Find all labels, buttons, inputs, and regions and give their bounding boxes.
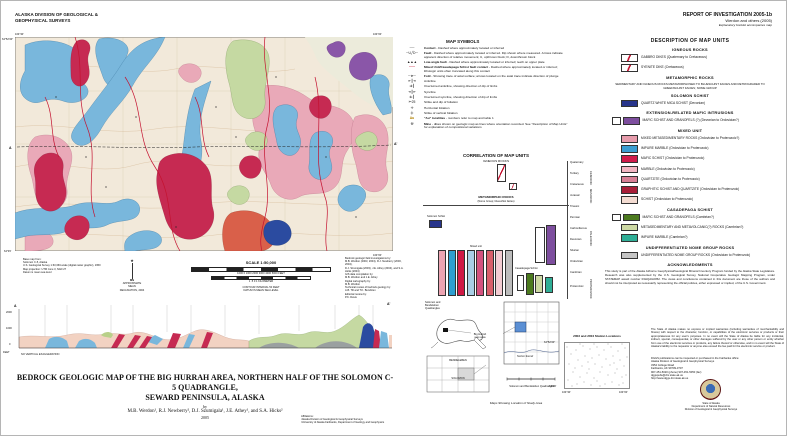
casadepaga-header: CASADEPAGA SCHIST — [595, 207, 785, 212]
fold-axis-icon: ─➤─ — [400, 75, 424, 79]
era-label: PALEOZOIC — [588, 231, 591, 246]
unit-swatch — [621, 196, 638, 204]
correlation-panel: CORRELATION OF MAP UNITS IGNEOUS ROCKS M… — [421, 153, 601, 301]
correlation-box-mafic-purple — [546, 225, 556, 265]
acknowledgments-title: ACKNOWLEDGMENTS — [595, 262, 785, 267]
time-tick: Silurian — [570, 250, 579, 253]
correlation-box-mixed-5 — [476, 250, 484, 296]
ordering-info: DGGS publications can be inspected or pu… — [651, 357, 784, 381]
north-arrow: ★ MN APPROXIMATE MEAN DECLINATION, 2004 — [119, 258, 145, 292]
correlation-box-mixed-3 — [457, 250, 465, 296]
coord-nw-lon: 164°30' — [15, 33, 24, 36]
extension-header: EXTENSION-RELATED MAFIC INTRUSIONS — [595, 110, 785, 115]
description-title: DESCRIPTION OF MAP UNITS — [595, 38, 785, 44]
inset-label-top: BENDELEBEN — [441, 359, 475, 362]
station-corner-se-lon: 164°00' — [619, 391, 628, 394]
correlation-box-mixed-4 — [467, 250, 475, 296]
norton-sound-label: Norton Sound — [517, 355, 533, 358]
correlation-box-mixed-7 — [495, 250, 503, 296]
horizontal-foliation-icon: ✛ — [400, 107, 424, 111]
section-endpoint-a-prime: A' — [394, 142, 397, 147]
xsection-elev-top: 2000 — [6, 311, 12, 314]
unit-label: QUARTZ WHITE MICA SCHIST (Devonian) — [641, 102, 705, 106]
time-tick: Jurassic — [570, 195, 580, 198]
overturned-syncline-icon: ⇇┃ — [400, 96, 424, 100]
disclaimer-text: The State of Alaska makes no express or … — [651, 328, 784, 348]
report-header: REPORT OF INVESTIGATION 2005-1b Werdon a… — [572, 12, 772, 27]
map-title-line1: BEDROCK GEOLOGIC MAP OF THE BIG HURRAH A… — [15, 373, 395, 393]
unit-label: GRAPHITIC SCHIST AND QUARTZITE (Ordovici… — [641, 188, 739, 192]
correlation-box-syenite — [509, 183, 517, 190]
scalebar-feet-labels: 1000 0 1000 2000 3000 4000 5000 FEET — [181, 272, 341, 275]
big-hurrah-cell — [515, 322, 526, 332]
fault-line-icon: ─U╱D─ — [400, 52, 424, 59]
coord-sw-lat: 64°45' — [4, 250, 11, 253]
station-corner-sw-lat: 64°45' — [549, 385, 556, 388]
correlation-divider — [423, 205, 569, 206]
time-tick: Cambrian — [570, 272, 582, 275]
unit-label: SCHIST (Ordovician to Proterozoic) — [641, 198, 693, 202]
location-maps-caption: Maps Showing Location of Study Area — [451, 401, 581, 405]
agency-signature: State of Alaska Department of Natural Re… — [663, 402, 759, 412]
solomon-header: SOLOMON SCHIST — [595, 93, 785, 98]
unit-label: SYENITE DIKE (Cretaceous) — [641, 66, 684, 70]
time-tick: Tertiary — [570, 173, 579, 176]
scale-block: SCALE 1:50,000 1000 0 1000 2000 3000 400… — [181, 260, 341, 292]
casadepaga-schist-label: Casadepaga Schist — [515, 267, 538, 270]
unit-swatch — [623, 214, 640, 222]
mixed-unit-label: Mixed unit — [437, 245, 515, 248]
base-map-credits: Base map from: Solomon C-5, Alaska U.S. … — [23, 258, 111, 274]
xsection-note: NO VERTICAL EXAGGERATION — [21, 353, 59, 356]
description-panel: DESCRIPTION OF MAP UNITS IGNEOUS ROCKS G… — [595, 38, 785, 285]
time-tick: Devonian — [570, 239, 581, 242]
coord-ne-lon: 164°00' — [373, 33, 382, 36]
correlation-box-gabbro — [497, 164, 506, 182]
correlation-box-casadepaga-2 — [535, 275, 543, 293]
unit-swatch — [621, 100, 638, 108]
era-label: PROTEROZOIC — [588, 279, 591, 299]
unit-swatch-white-variant — [612, 214, 621, 222]
map-sheet: ALASKA DIVISION OF GEOLOGICAL & GEOPHYSI… — [0, 0, 787, 436]
correlation-igneous-header: IGNEOUS ROCKS — [421, 159, 571, 163]
unit-swatch — [621, 252, 638, 260]
metamorphic-header: METAMORPHIC ROCKS — [595, 75, 785, 80]
quad-map-caption: Solomon and Bendeleben Quadrangles — [497, 385, 567, 388]
correlation-metamorphic-sub: (Nome Group; blueschist facies) — [426, 200, 566, 203]
unit-label: MAFIC SCHIST AND GRANOFELS (?) (Devonian… — [643, 119, 739, 123]
igneous-header: IGNEOUS ROCKS — [595, 47, 785, 52]
vertical-foliation-icon: ╪ — [400, 112, 424, 116]
production-credits: Bedrock geologic field investigations by… — [345, 257, 405, 299]
unit-swatch — [621, 135, 638, 143]
unit-swatch — [621, 224, 638, 232]
xsection-elev-zero: 0 — [9, 343, 10, 346]
unit-label: IMPURE MARBLE (Cambrian?) — [641, 236, 688, 240]
map-symbols-title: MAP SYMBOLS — [446, 39, 576, 45]
unit-label: QUARTZITE (Ordovician to Proterozoic) — [641, 178, 700, 182]
time-tick: Carboniferous — [570, 228, 587, 231]
cross-section-svg — [15, 301, 395, 353]
time-axis-line — [567, 161, 568, 299]
time-tick: Ordovician — [570, 261, 583, 264]
scale-label: SCALE 1:50,000 — [181, 260, 341, 265]
unit-label: MAFIC SCHIST AND GRANOFELS (Cambrian?) — [643, 216, 714, 220]
section-endpoint-a: A — [9, 146, 12, 151]
map-symbols-panel: MAP SYMBOLS ── Contact - Dashed where ap… — [400, 39, 576, 131]
unit-label: MARBLE (Ordovician to Proterozoic) — [641, 168, 695, 172]
overturned-anticline-icon: ⇉┃ — [400, 85, 424, 89]
station-corner-nw-lat: 64°52'30" — [544, 341, 555, 344]
geologic-map-svg — [15, 37, 393, 251]
time-tick: Proterozoic — [570, 286, 584, 289]
alaska-dggs-seal — [700, 379, 721, 400]
time-tick: Cretaceous — [570, 184, 584, 187]
unit-swatch-gabbro — [621, 54, 638, 62]
study-area-pointer-label: Big Hurrah map area — [465, 333, 495, 339]
unit-label: METASEDIMENTARY AND METAVOLCANIC(?) ROCK… — [641, 226, 743, 230]
acknowledgments-text: This study is part of the Alaska Airborn… — [605, 269, 775, 285]
declination-note: APPROXIMATE MEAN DECLINATION, 2004 — [119, 282, 145, 292]
unit-swatch — [621, 166, 638, 174]
map-title-line2: SEWARD PENINSULA, ALASKA — [15, 393, 395, 403]
xsection-elev-unit: FEET — [3, 351, 10, 354]
title-block: BEDROCK GEOLOGIC MAP OF THE BIG HURRAH A… — [15, 373, 395, 421]
anticline-icon: ↞┃↠ — [400, 80, 424, 84]
north-line — [132, 263, 133, 279]
metamorphic-note: SEDIMENTARY AND IGNEOUS ROCKS METAMORPHO… — [609, 82, 771, 90]
coord-nw-lat: 64°52'30" — [2, 38, 13, 41]
correlation-metamorphic-header: METAMORPHIC ROCKS — [426, 195, 566, 199]
station-locations-svg — [564, 342, 630, 389]
agency-header: ALASKA DIVISION OF GEOLOGICAL & GEOPHYSI… — [15, 12, 98, 23]
correlation-box-casadepaga-3 — [545, 277, 553, 293]
mixed-header: MIXED UNIT — [595, 128, 785, 133]
unit-label: IMPURE MARBLE (Ordovician to Proterozoic… — [641, 147, 708, 151]
unit-label: UNDIFFERENTIATED NOME GROUP ROCKS (Ordov… — [641, 254, 750, 258]
report-note: Explanatory booklet accompanies map — [572, 23, 772, 27]
unit-swatch — [621, 176, 638, 184]
unit-swatch — [621, 234, 638, 242]
era-label: CENOZOIC — [588, 171, 591, 185]
time-tick: Quaternary — [570, 162, 583, 165]
unit-swatch — [621, 155, 638, 163]
inset-label-bottom: SOLOMON — [441, 377, 475, 380]
correlation-box-mixed-2 — [448, 250, 456, 296]
unit-label: GABBRO DIKES (Quaternary to Cretaceous) — [641, 56, 707, 60]
alaska-map-label: Solomon and Bendeleben Quadrangles — [425, 301, 459, 311]
solomon-bendeleben-quad-map — [503, 301, 561, 393]
mixed-contact-icon: ╌╌╌ — [400, 66, 424, 73]
north-star-icon: ★ — [119, 258, 145, 263]
alaska-outline-map — [431, 311, 491, 353]
syncline-icon: ↠┃↞ — [400, 91, 424, 95]
unit-swatch — [623, 117, 640, 125]
time-tick: Triassic — [570, 206, 579, 209]
solomon-schist-label: Solomon Schist — [427, 215, 445, 218]
gold-locality-icon: Au — [400, 117, 424, 121]
unit-swatch — [621, 145, 638, 153]
mine-icon: ⚒ — [400, 123, 424, 130]
correlation-box-mixed-8 — [505, 250, 513, 296]
station-map-title: 2003 and 2004 Station Locations — [557, 334, 637, 338]
correlation-box-casadepaga-white — [517, 275, 524, 291]
correlation-box-solomon — [429, 220, 442, 228]
unit-label: MAFIC SCHIST (Ordovician to Proterozoic) — [641, 157, 704, 161]
unit-swatch — [621, 186, 638, 194]
correlation-box-mixed-1 — [438, 250, 446, 296]
scalebar-km-labels: 1 .5 0 1 KILOMETER — [181, 280, 341, 283]
era-label: MESOZOIC — [588, 189, 591, 203]
unit-swatch-syenite — [621, 64, 638, 72]
contact-line-icon: ── — [400, 47, 424, 51]
correlation-box-mixed-6 — [486, 250, 494, 296]
xsection-elev-mid: 1000 — [6, 327, 12, 330]
undiff-header: UNDIFFERENTIATED NOME GROUP ROCKS — [595, 245, 785, 250]
contour-note: CONTOUR INTERVAL 50 FEET DATUM IS MEAN S… — [181, 286, 341, 292]
time-tick: Permian — [570, 217, 580, 220]
correlation-box-mafic-white — [535, 227, 545, 263]
correlation-box-casadepaga-1 — [526, 273, 534, 295]
low-angle-fault-icon: ▲▲▲ — [400, 61, 424, 65]
unit-swatch-white-variant — [612, 117, 621, 125]
affiliations-footnote: Affiliations: ¹Alaska Division of Geolog… — [301, 415, 431, 425]
study-area-marker — [443, 328, 448, 332]
unit-label: MIXED METASEDIMENTARY ROCKS (Ordovician … — [641, 137, 739, 141]
strike-dip-icon: ⊢25 — [400, 101, 424, 105]
station-corner-sw-lon: 164°30' — [562, 391, 571, 394]
